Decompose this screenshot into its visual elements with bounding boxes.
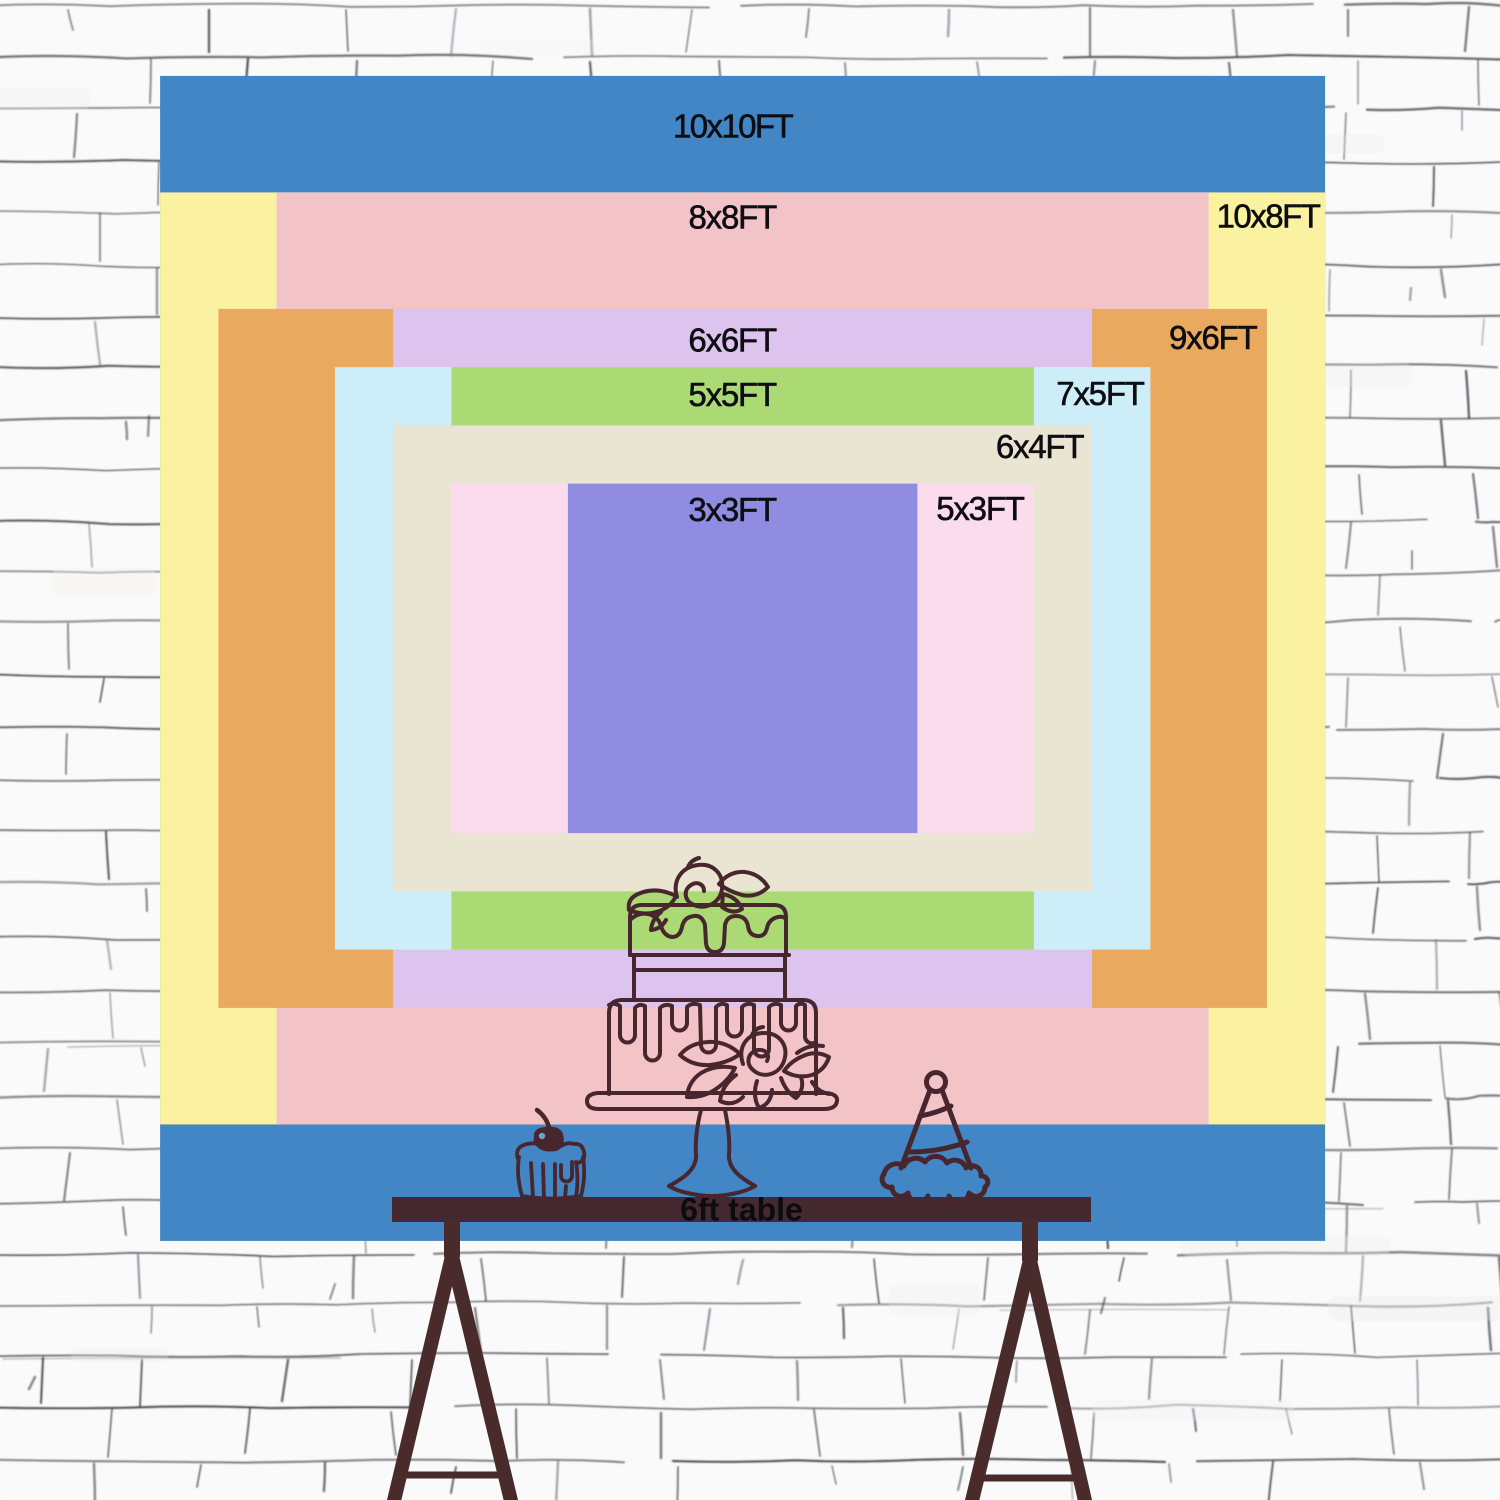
svg-text:10x8FT: 10x8FT [1217, 198, 1321, 235]
svg-text:6x4FT: 6x4FT [996, 428, 1085, 465]
svg-text:5x5FT: 5x5FT [688, 376, 777, 413]
svg-text:8x8FT: 8x8FT [689, 198, 778, 235]
svg-text:6x6FT: 6x6FT [688, 322, 777, 359]
svg-text:7x5FT: 7x5FT [1056, 375, 1145, 412]
svg-text:3x3FT: 3x3FT [688, 491, 777, 528]
svg-text:5x3FT: 5x3FT [936, 490, 1025, 527]
svg-text:9x6FT: 9x6FT [1169, 319, 1258, 356]
svg-text:10x10FT: 10x10FT [673, 108, 793, 145]
